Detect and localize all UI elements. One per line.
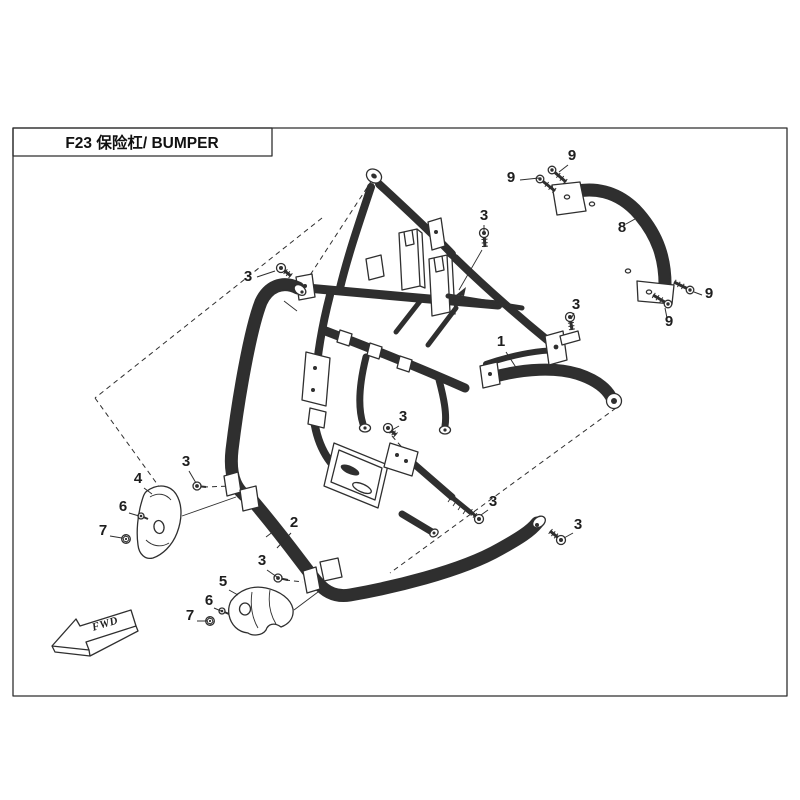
callout-leader-line xyxy=(694,292,702,295)
callout-3: 3 xyxy=(481,493,497,515)
callout-3: 3 xyxy=(258,552,277,577)
bumper-exploded-diagram: F23 保险杠/ BUMPER xyxy=(0,0,800,800)
callout-3: 3 xyxy=(571,296,580,319)
callout-number: 3 xyxy=(244,268,252,285)
callout-6: 6 xyxy=(205,592,221,611)
callout-3: 3 xyxy=(182,453,196,483)
callout-number: 3 xyxy=(489,493,497,510)
callout-leader-line xyxy=(481,510,488,515)
callout-number: 9 xyxy=(705,285,713,302)
callout-number: 7 xyxy=(99,522,107,539)
callout-number: 6 xyxy=(119,498,127,515)
callout-3: 3 xyxy=(564,516,582,538)
callout-9: 9 xyxy=(507,169,539,186)
callout-3: 3 xyxy=(480,207,488,232)
callout-number: 3 xyxy=(572,296,580,313)
callout-leader-line xyxy=(559,165,568,172)
callout-number: 9 xyxy=(568,147,576,164)
callout-number: 5 xyxy=(219,573,227,590)
callout-number: 9 xyxy=(665,313,673,330)
part-4-cover xyxy=(137,486,236,558)
callout-1: 1 xyxy=(497,333,517,369)
callout-number: 4 xyxy=(134,470,143,487)
diagram-title: F23 保险杠/ BUMPER xyxy=(65,133,218,152)
callout-7: 7 xyxy=(186,607,207,624)
callout-number: 7 xyxy=(186,607,194,624)
screw-fastener xyxy=(548,166,567,183)
part-5-cover xyxy=(229,587,318,635)
callout-number: 6 xyxy=(205,592,213,609)
callout-number: 9 xyxy=(507,169,515,186)
screw-fastener xyxy=(536,175,556,193)
callout-layer: 123333333345667789999 xyxy=(99,147,713,624)
callout-number: 3 xyxy=(399,408,407,425)
callout-9: 9 xyxy=(559,147,576,172)
callout-leader-line xyxy=(267,570,277,577)
bolt-fastener xyxy=(549,529,566,544)
bolt-fastener xyxy=(277,264,293,278)
callout-leader-line xyxy=(564,533,573,538)
part-8-grab-bar xyxy=(552,182,674,304)
hexbolt-fastener xyxy=(122,535,131,544)
callout-number: 3 xyxy=(574,516,582,533)
callout-9: 9 xyxy=(665,308,673,330)
callout-number: 3 xyxy=(182,453,190,470)
callout-number: 3 xyxy=(258,552,266,569)
fwd-direction-arrow: FWD xyxy=(52,610,138,656)
callout-7: 7 xyxy=(99,522,122,539)
callout-number: 1 xyxy=(497,333,505,350)
callout-leader-line xyxy=(257,271,275,277)
nut-fastener xyxy=(193,482,206,490)
callout-number: 3 xyxy=(480,207,488,224)
callout-leader-line xyxy=(129,513,139,516)
nut-fastener xyxy=(274,574,288,582)
callout-3: 3 xyxy=(392,408,407,430)
callout-number: 8 xyxy=(618,219,626,236)
callout-leader-line xyxy=(229,590,238,595)
bolt-fastener xyxy=(468,509,483,523)
callout-number: 2 xyxy=(290,514,298,531)
callout-6: 6 xyxy=(119,498,139,516)
callout-leader-line xyxy=(110,536,122,538)
part-2-bumper-tube xyxy=(224,282,548,595)
callout-5: 5 xyxy=(219,573,238,595)
parts-diagram-page: F23 保险杠/ BUMPER xyxy=(0,0,800,800)
screw-fastener xyxy=(673,280,693,294)
callout-9: 9 xyxy=(694,285,713,302)
bolt-fastener xyxy=(384,424,398,437)
callout-leader-line xyxy=(189,471,196,483)
